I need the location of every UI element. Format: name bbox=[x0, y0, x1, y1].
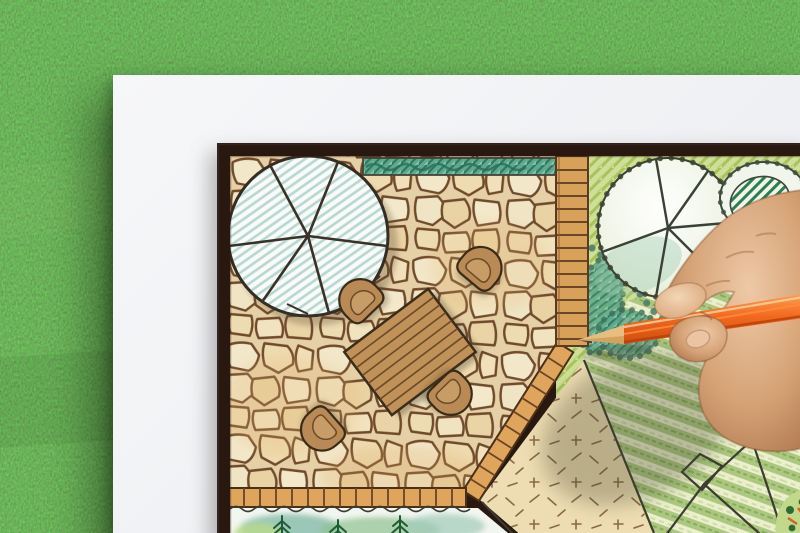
walkway bbox=[556, 156, 588, 346]
hedge-strip bbox=[363, 158, 556, 175]
garden-plan-drawing bbox=[217, 143, 800, 533]
photo-scene bbox=[0, 0, 800, 533]
hatched-shrub bbox=[720, 162, 800, 234]
